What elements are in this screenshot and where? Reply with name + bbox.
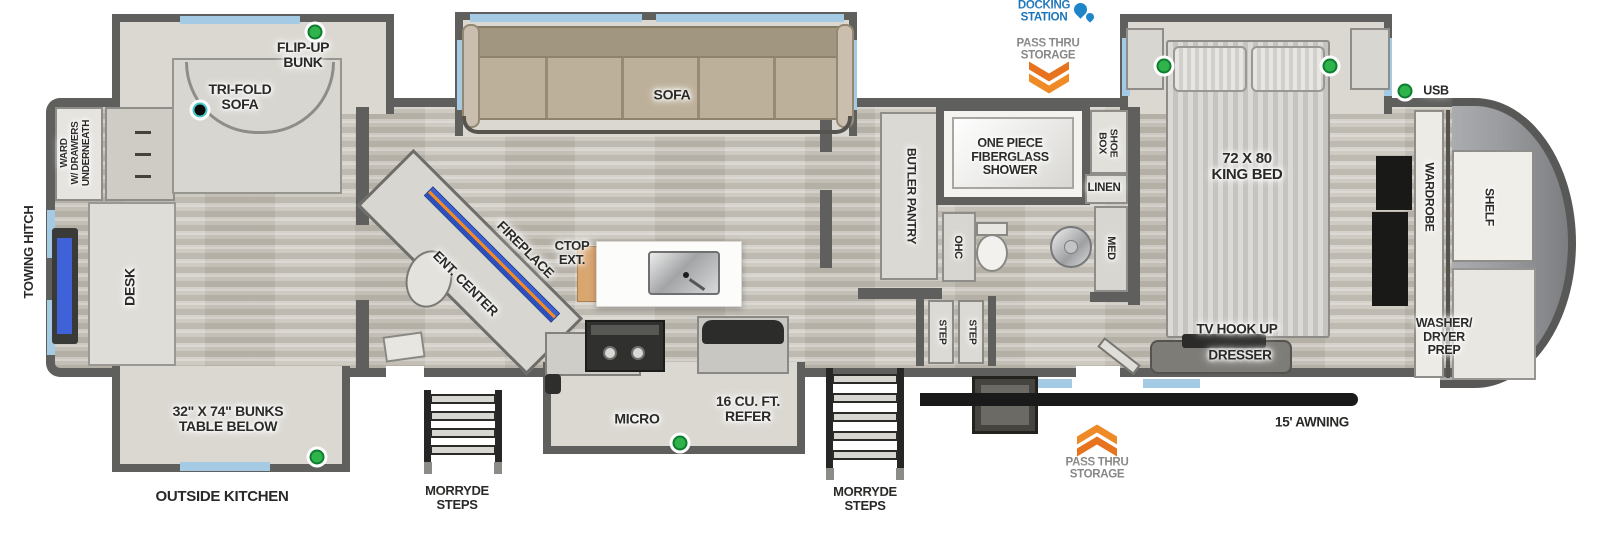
label-morryde-steps-left: MORRYDE STEPS — [425, 484, 489, 512]
step-rung — [430, 445, 496, 455]
bedroom-closet — [1376, 156, 1412, 210]
sofa-cushions — [470, 56, 846, 120]
bedroom-closet — [1372, 212, 1408, 306]
pillow — [1251, 46, 1325, 92]
sofa-slide-rim — [462, 116, 852, 134]
step-foot — [826, 468, 834, 480]
butler-pantry-cabinet — [880, 112, 938, 280]
led-indicator — [1157, 59, 1172, 74]
desk — [88, 202, 176, 366]
step-foot — [494, 462, 502, 474]
countertop-extension-flap — [577, 246, 597, 302]
stair-wall — [916, 296, 924, 366]
stair-step — [958, 300, 984, 364]
window — [470, 14, 642, 22]
toilet — [976, 234, 1008, 272]
speaker-indicator — [193, 103, 208, 118]
step-rung — [832, 374, 898, 384]
refrigerator — [697, 316, 789, 374]
led-indicator — [1323, 59, 1338, 74]
sofa-armrest — [462, 24, 480, 128]
label-towing-hitch: TOWING HITCH — [22, 206, 36, 299]
pantry-wall — [820, 190, 832, 268]
led-indicator — [308, 25, 323, 40]
drawer-handle — [135, 175, 151, 178]
step-foot — [424, 462, 432, 474]
nightstand — [1350, 28, 1390, 90]
linen-cabinet — [1085, 174, 1128, 204]
label-awning: 15' AWNING — [1275, 416, 1349, 431]
step-rung — [430, 411, 496, 421]
sink-faucet — [689, 278, 705, 291]
label-outside-kitchen: OUTSIDE KITCHEN — [155, 489, 288, 505]
window — [180, 462, 270, 471]
morryde-steps-left — [424, 390, 502, 474]
overhead-cabinet — [942, 212, 976, 282]
refrigerator-top — [702, 320, 784, 344]
step-rung — [832, 450, 898, 460]
washer-dryer-prep-area — [1452, 268, 1536, 380]
nightstand — [1126, 28, 1164, 90]
step-rung — [832, 412, 898, 422]
cooktop-stove — [585, 320, 665, 372]
rear-room-wall — [356, 300, 369, 368]
main-entry-doorway — [1076, 366, 1120, 379]
drawer-handle — [135, 153, 151, 156]
window — [656, 14, 844, 22]
bath-wall — [1090, 292, 1140, 302]
stair-step — [928, 300, 954, 364]
led-indicator — [310, 450, 325, 465]
drawer-cabinet-rear — [105, 107, 175, 201]
shower-pan — [952, 117, 1074, 189]
step-foot — [896, 468, 904, 480]
rear-tv-screen — [57, 238, 72, 334]
rv-floorplan: FLIP-UP BUNK TRI-FOLD SOFA WARD W/ DRAWE… — [0, 0, 1600, 538]
shower — [936, 103, 1090, 205]
step-rail — [495, 390, 502, 467]
step-rail — [897, 368, 904, 471]
sofa-back — [468, 26, 848, 58]
bath-sink — [1050, 226, 1092, 268]
rear-entry-doorway — [386, 366, 424, 379]
label-docking-station: DOCKING STATION — [1018, 0, 1070, 24]
step-rung — [832, 393, 898, 403]
awning-bar — [920, 393, 1358, 406]
step-rung — [430, 428, 496, 438]
label-usb: USB — [1423, 84, 1449, 98]
drawer-handle — [135, 131, 151, 134]
front-wardrobe — [1414, 110, 1444, 378]
usb-indicator — [1398, 84, 1413, 99]
morryde-steps-right — [826, 368, 904, 480]
sofa-armrest — [836, 24, 854, 128]
front-shelf — [1452, 150, 1534, 262]
kitchen-sink — [648, 251, 720, 295]
dresser-tv — [1182, 334, 1266, 348]
bath-wall — [858, 288, 942, 299]
drain-pipe — [545, 374, 561, 394]
stove-grill — [591, 325, 659, 335]
rear-tv — [52, 228, 78, 344]
step-rung — [430, 394, 496, 404]
rear-entry-door-open — [382, 331, 425, 362]
label-pass-thru-bottom: PASS THRU STORAGE — [1066, 457, 1129, 482]
window — [1143, 379, 1200, 388]
bedroom-wall — [1128, 107, 1140, 305]
cabinet-divider — [1446, 110, 1450, 378]
bath-vanity — [1094, 206, 1128, 292]
chevron-up-icon — [1076, 419, 1118, 458]
label-pass-thru-top: PASS THRU STORAGE — [1017, 38, 1080, 63]
window — [180, 16, 300, 24]
step-rung — [832, 431, 898, 441]
stair-wall — [988, 296, 996, 366]
shoe-box-cabinet — [1090, 110, 1128, 174]
burner — [603, 346, 617, 360]
label-morryde-steps-right: MORRYDE STEPS — [833, 485, 897, 513]
wardrobe-cabinet-rear — [55, 107, 103, 201]
burner — [631, 346, 645, 360]
bath-sink-drain — [1064, 240, 1078, 254]
chevron-down-icon — [1028, 61, 1070, 100]
sink-drain — [683, 272, 689, 278]
pillow — [1173, 46, 1247, 92]
led-indicator — [673, 436, 688, 451]
